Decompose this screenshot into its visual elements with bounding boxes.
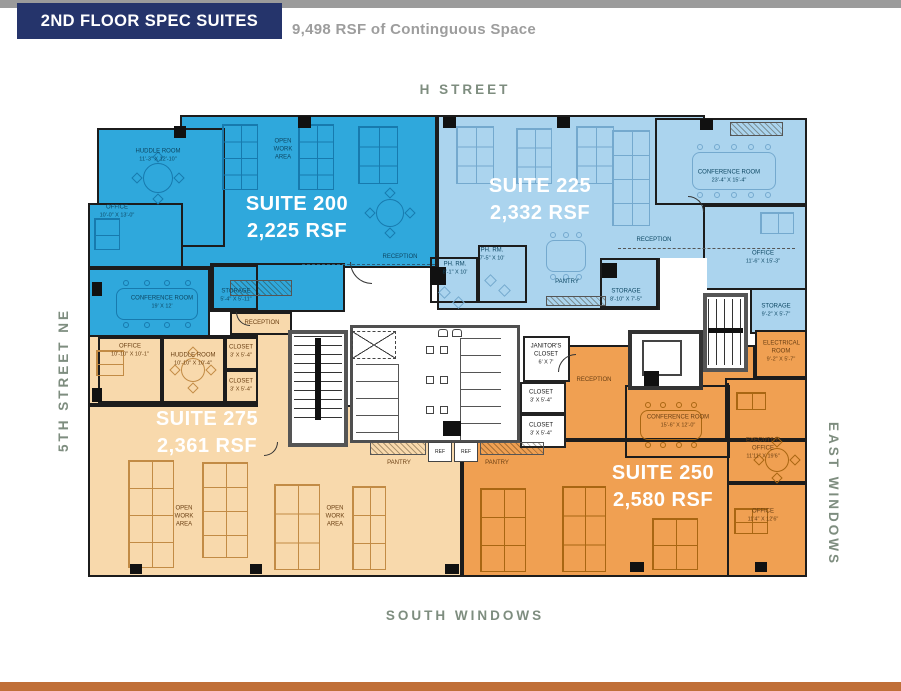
column [644,371,659,386]
suite-275-connector [258,335,290,407]
credenza-counter [730,122,783,136]
desk-cluster [480,488,526,572]
sink-icon [440,406,448,414]
room-label-pantry: PANTRY [485,460,509,468]
elevator-x-shaft [352,331,396,359]
street-label-east-windows: EAST WINDOWS [826,422,841,582]
column [630,562,644,572]
chair-icon [144,322,150,328]
room-label-storage: STORAGE5'-4" X 5'-11" [220,289,251,304]
room-label-office: OFFICE11'4" X 12'6" [748,509,779,524]
room-label-pantry: PANTRY [387,460,411,468]
room-label-conference-room: CONFERENCE ROOM23'-4" X 15'-4" [698,170,760,185]
desk-cluster [358,126,398,184]
room-label-closet: CLOSET3' X 5'-4" [529,423,553,438]
street-label-5th-street-ne: 5TH STREET NE [56,292,71,452]
room-label-open-work-area: OPEN WORK AREA [166,505,202,528]
desk-cluster [760,212,794,234]
toilet-icon [452,329,462,337]
room-label-closet: CLOSET3' X 5'-4" [229,379,253,394]
sink-icon [426,406,434,414]
chair-icon [731,192,737,198]
column [92,282,102,296]
column [250,564,262,574]
room-label-office: OFFICE10'-10" X 10'-1" [111,344,149,359]
suite-225-pantry-counter [546,296,606,306]
chair-icon [748,192,754,198]
room-label-storage: STORAGE8'-10" X 7'-5" [610,289,642,304]
desk-cluster [222,124,258,190]
chair-icon [748,144,754,150]
conference-table [546,240,586,272]
desk-cluster [652,518,698,570]
street-label-south-windows: SOUTH WINDOWS [0,608,901,623]
chair-icon [645,402,651,408]
chair-icon [731,144,737,150]
room-label-phone-room: PH. RM.7'-5" X 10' [480,248,505,263]
refrigerator-label: REF [435,449,445,456]
chair-icon [185,322,191,328]
column [298,116,311,128]
page-title: 2ND FLOOR SPEC SUITES [41,12,258,31]
room-label-open-work-area: OPEN WORK AREA [317,505,353,528]
column [130,564,142,574]
column [602,263,617,278]
door-arc [350,262,372,284]
floor-plan: SUITE 200 2,225 RSF SUITE 225 2,332 RSF … [88,112,810,578]
chair-icon [676,442,682,448]
desk-cluster [562,486,606,572]
room-label-reception: RECEPTION [244,320,279,328]
desk-cluster [612,130,650,226]
chair-icon [645,442,651,448]
suite-275-pantry-counter [370,442,426,455]
column [92,388,102,402]
refrigerator-label: REF [461,449,471,456]
desk-cluster [352,486,386,570]
desk-cluster [202,462,248,558]
corridor-notch [658,258,707,310]
bottom-accent-bar [0,682,901,691]
chair-icon [765,192,771,198]
room-label-janitors-closet: JANITOR'S CLOSET6' X 7' [528,344,564,367]
room-label-office: OFFICE11'-6" X 15'-3" [746,251,780,266]
sink-icon [426,346,434,354]
room-label-open-work-area: OPEN WORK AREA [265,138,301,161]
chair-icon [550,232,556,238]
toilet-icon [438,329,448,337]
desk-cluster [736,392,766,410]
suite-250-label: SUITE 250 2,580 RSF [612,460,714,514]
room-label-huddle-room: HUDDLE ROOM11'-3" X 12'-10" [135,149,180,164]
suite-225-label: SUITE 225 2,332 RSF [489,173,591,227]
subtitle: 9,498 RSF of Continguous Space [292,21,536,38]
floorplan-page: 2ND FLOOR SPEC SUITES 9,498 RSF of Conti… [0,0,901,691]
room-label-phone-room: PH. RM.8'-1" X 10' [443,262,468,277]
reception-dashed-line [618,248,795,249]
column [445,564,459,574]
desk-cluster [94,218,120,250]
column [174,126,186,138]
restroom-stalls-left [356,364,399,440]
column [700,119,713,130]
room-label-conference-room: CONFERENCE ROOM19' X 12' [131,296,193,311]
stair-rail [708,328,743,333]
column [443,421,461,436]
room-label-reception: RECEPTION [636,237,671,245]
sink-icon [440,346,448,354]
room-label-executive-office: EXECUTIVE OFFICE11'11" X 19'6" [745,438,781,461]
room-label-huddle-room: HUDDLE ROOM10'-10" X 10'-4" [170,353,215,368]
street-label-h-street: H STREET [0,82,901,97]
restroom-stalls-right [460,338,501,440]
room-label-conference-room: CONFERENCE ROOM15'-6" X 12'-0" [647,415,709,430]
sink-icon [426,376,434,384]
stair-rail [315,338,321,420]
sink-icon [440,376,448,384]
room-label-reception: RECEPTION [576,377,611,385]
room-label-reception: RECEPTION [382,254,417,262]
suite-250-pantry-counter [480,442,544,455]
chair-icon [676,402,682,408]
column [557,117,570,128]
suite-275-label: SUITE 275 2,361 RSF [156,406,258,460]
column [443,117,456,128]
chair-icon [144,280,150,286]
round-table [143,163,173,193]
suite-200-label: SUITE 200 2,225 RSF [246,191,348,245]
room-label-pantry: PANTRY [555,279,579,287]
desk-cluster [274,484,320,570]
room-label-storage: STORAGE9'-2" X 5'-7" [761,304,790,319]
room-label-electrical-room: ELECTRICAL ROOM9'-2" X 5'-7" [763,341,799,364]
room-label-office: OFFICE10'-0" X 13'-0" [100,205,135,220]
chair-icon [185,280,191,286]
round-table [376,199,404,227]
chair-icon [563,232,569,238]
desk-cluster [298,124,334,190]
chair-icon [765,144,771,150]
room-label-closet: CLOSET3' X 5'-4" [529,390,553,405]
column [755,562,767,572]
room-label-closet: CLOSET3' X 5'-4" [229,345,253,360]
title-box: 2ND FLOOR SPEC SUITES [17,3,282,39]
